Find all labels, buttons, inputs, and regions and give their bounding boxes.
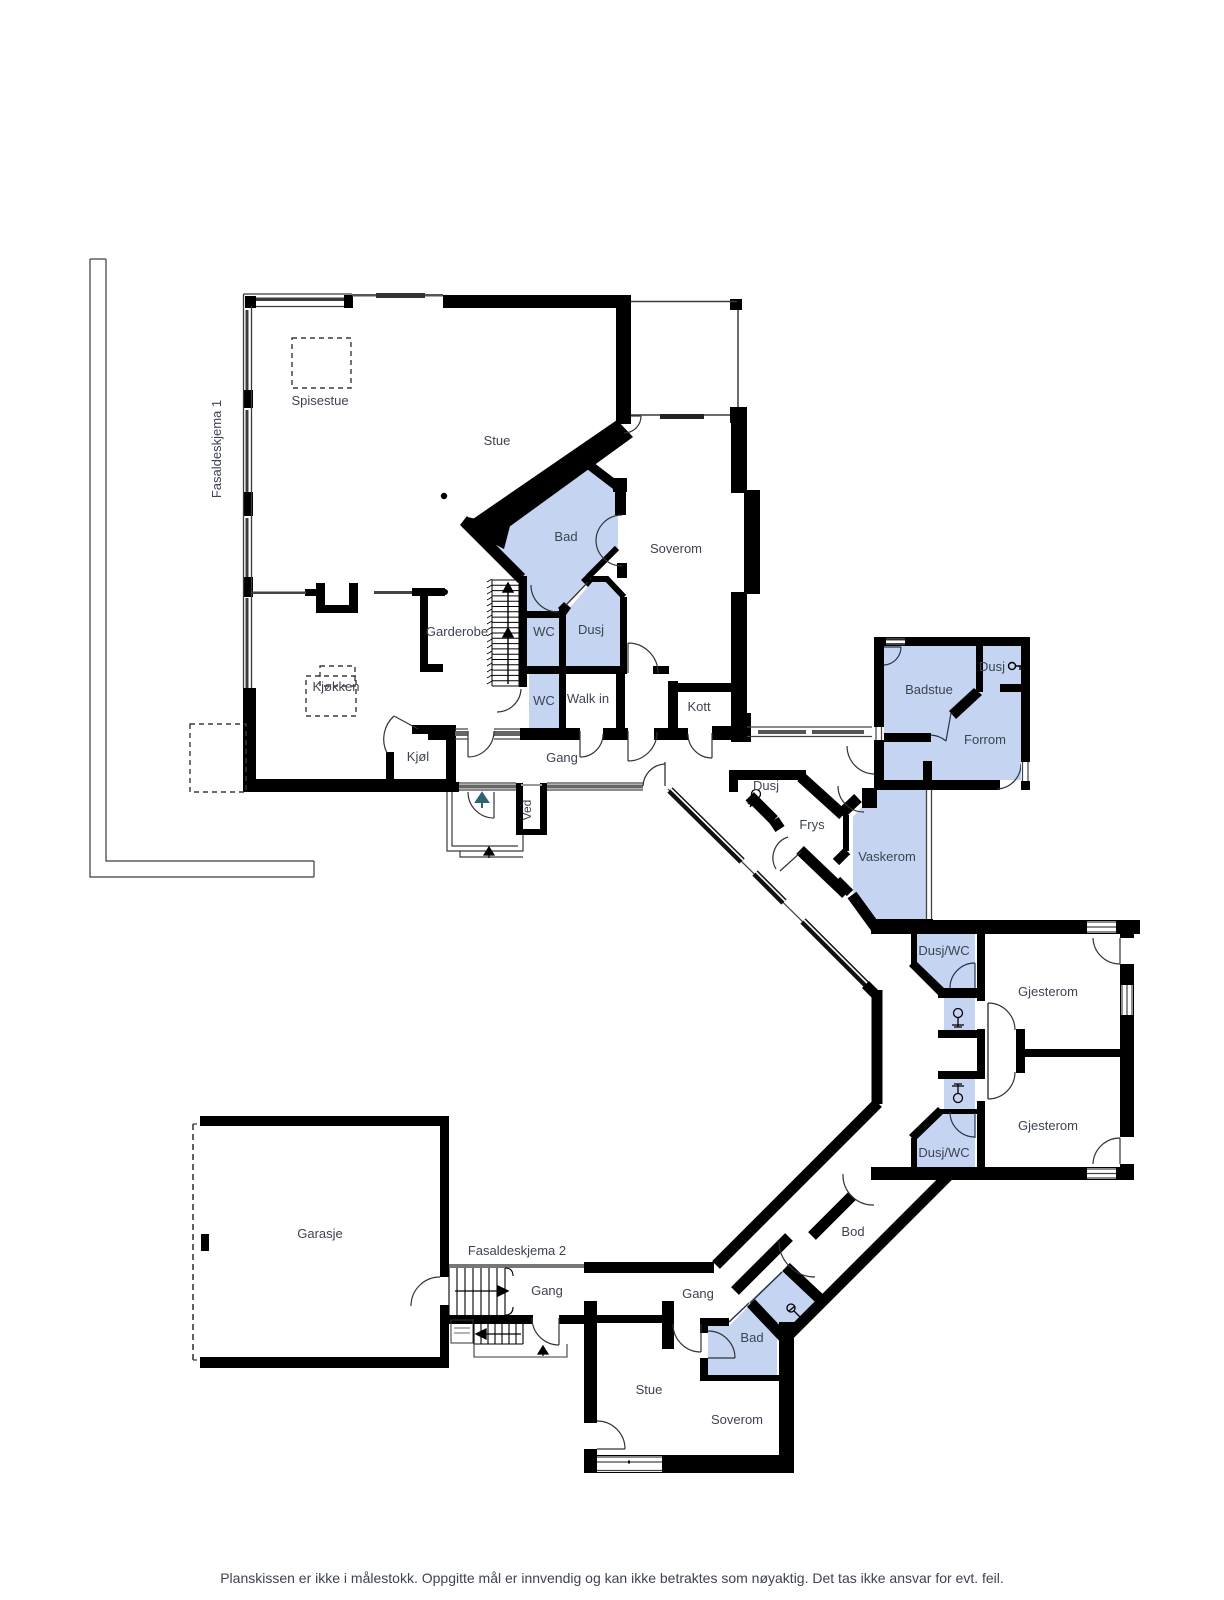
svg-text:Gang: Gang (531, 1283, 563, 1298)
svg-text:Fasaldeskjema 1: Fasaldeskjema 1 (209, 400, 224, 498)
svg-text:Dusj: Dusj (753, 778, 779, 793)
svg-text:Kjøkken: Kjøkken (313, 679, 360, 694)
svg-text:Dusj: Dusj (979, 659, 1005, 674)
svg-text:Frys: Frys (799, 817, 825, 832)
svg-text:Bod: Bod (841, 1224, 864, 1239)
svg-text:Vaskerom: Vaskerom (858, 849, 916, 864)
svg-text:Bad: Bad (740, 1330, 763, 1345)
svg-text:Soverom: Soverom (711, 1412, 763, 1427)
svg-text:Bad: Bad (554, 529, 577, 544)
svg-text:Kott: Kott (687, 699, 711, 714)
svg-text:Ved: Ved (520, 800, 534, 821)
svg-text:Soverom: Soverom (650, 541, 702, 556)
svg-text:Garasje: Garasje (297, 1226, 343, 1241)
svg-text:Gang: Gang (546, 750, 578, 765)
svg-text:Gjesterom: Gjesterom (1018, 1118, 1078, 1133)
svg-text:Garderobe: Garderobe (426, 624, 488, 639)
svg-text:Dusj: Dusj (578, 622, 604, 637)
svg-text:Forrom: Forrom (964, 732, 1006, 747)
svg-text:Planskissen er ikke i målestok: Planskissen er ikke i målestokk. Oppgitt… (220, 1570, 1004, 1586)
svg-text:WC: WC (533, 624, 555, 639)
svg-text:Kjøl: Kjøl (407, 749, 430, 764)
svg-text:Walk in: Walk in (567, 691, 609, 706)
svg-text:Stue: Stue (484, 433, 511, 448)
svg-text:Stue: Stue (636, 1382, 663, 1397)
svg-text:Gang: Gang (682, 1286, 714, 1301)
svg-text:WC: WC (533, 693, 555, 708)
svg-text:Badstue: Badstue (905, 682, 953, 697)
svg-text:Gjesterom: Gjesterom (1018, 984, 1078, 999)
svg-text:Dusj/WC: Dusj/WC (918, 943, 969, 958)
svg-text:Fasaldeskjema 2: Fasaldeskjema 2 (468, 1243, 566, 1258)
svg-text:Dusj/WC: Dusj/WC (918, 1145, 969, 1160)
svg-text:Spisestue: Spisestue (291, 393, 348, 408)
